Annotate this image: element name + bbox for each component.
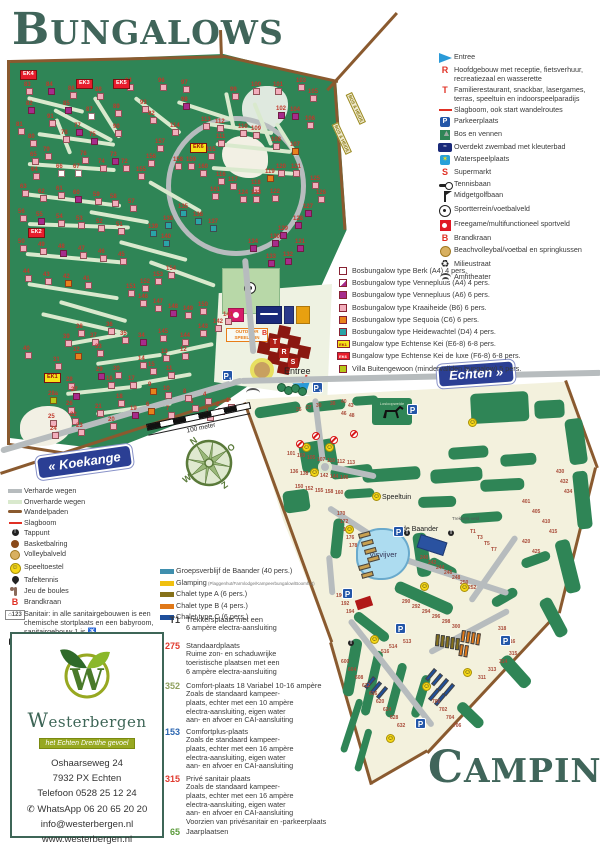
- facility-legend-item: Tennisbaan: [436, 179, 598, 188]
- camping-legend-label: Chalet type A (6 pers.): [176, 589, 247, 598]
- facility-legend-icon-cell: T: [436, 86, 454, 95]
- path-legend-item: Jeu de boules: [6, 586, 162, 596]
- path-legend-item: ☺Speeltoestel: [6, 562, 162, 574]
- brand-name: Westerbergen: [12, 708, 162, 732]
- golf-flag: [446, 191, 452, 195]
- pitch-type-text: Comfort-plaats 18 Variabel 10-16 ampèreZ…: [186, 681, 336, 725]
- pitch-type-number: T1: [158, 615, 180, 625]
- contact-lines: Oshaarseweg 247932 PX EchtenTelefoon 052…: [12, 756, 162, 847]
- road-green-icon: [8, 500, 22, 504]
- bungalow-type-item: Bosbungalow type Sequoia (C6) 6 pers.: [334, 315, 598, 324]
- basket-icon: [11, 540, 19, 548]
- pitch-type-text: Jaarplaatsen: [186, 827, 336, 836]
- tree-icon: [291, 384, 300, 393]
- facility-legend-item: Freegame/multifunctioneel sportveld: [436, 219, 598, 231]
- facility-legend-label: Beachvolleybal/voetbal en springkussen: [454, 245, 582, 254]
- facility-legend-icon-cell: S: [436, 168, 454, 177]
- bungalow-type-item: Bosbungalow type Vennepluus (A4) 4 pers.: [334, 278, 598, 287]
- path-legend-icon-cell: [6, 519, 24, 524]
- bungalow-type-swatch-cell: [334, 304, 352, 312]
- path-legend-item: Slagboom: [6, 518, 162, 527]
- facility-legend-icon-cell: ≈: [436, 143, 454, 152]
- camping-title: Camping: [428, 742, 600, 793]
- contact-line: Oshaarseweg 24: [12, 756, 162, 771]
- path-legend-icon-cell: ⌂123: [6, 610, 24, 620]
- facility-legend-label: Slagboom, ook start wandelroutes: [454, 105, 563, 114]
- facility-legend-icon-cell: P: [436, 117, 454, 127]
- smiley-icon: ☺: [10, 563, 21, 574]
- tree-icon: [284, 386, 293, 395]
- camping-legend-swatch: [160, 592, 174, 597]
- bungalow-type-label: Bosbungalow type Vennepluus (A4) 4 pers.: [352, 278, 490, 287]
- facility-legend-label: Sportterrein/voetbalveld: [454, 204, 530, 213]
- path-legend-item: Onverharde wegen: [6, 497, 162, 506]
- contact-line: Telefoon 0528 25 12 24: [12, 786, 162, 801]
- path-legend-label: Brandkraan: [24, 597, 158, 606]
- bungalow-type-item: Bosbungalow type Berk (A4) 4 pers.: [334, 266, 598, 275]
- bungalow-type-label: Bosbungalow type Berk (A4) 4 pers.: [352, 266, 467, 275]
- path-legend-label: Tafeltennis: [24, 575, 158, 584]
- path-legend-label: Tappunt: [24, 528, 158, 537]
- road-brown-icon: [8, 510, 22, 513]
- bungalows-title: Bungalows: [12, 4, 284, 55]
- facility-legend-label: Parkeerplaats: [454, 116, 498, 125]
- path-legend-icon-cell: ☺: [6, 563, 24, 574]
- bungalow-type-swatch: [339, 279, 347, 287]
- facility-legend-item: Beachvolleybal/voetbal en springkussen: [436, 245, 598, 257]
- camping-legend-swatch-cell: [158, 567, 176, 574]
- path-legend-icon-cell: [6, 487, 24, 493]
- camping-legend-label: Groepsverblijf de Baander (40 pers.): [176, 566, 292, 575]
- facility-legend: EntreeRHoofdgebouw met receptie, fietsve…: [436, 52, 598, 284]
- tennis-icon: [439, 184, 451, 187]
- bungalow-type-swatch: EK6: [337, 352, 350, 360]
- pitch-type-block: 315Privé sanitair plaatsZoals de standaa…: [158, 774, 336, 827]
- path-legend-item: Wandelpaden: [6, 507, 162, 516]
- pitch-type-line: Voorzien van privésanitair en -parkeerpl…: [186, 818, 336, 827]
- bungalow-type-item: Villa Buitengewoon (mindervaliden bungal…: [334, 364, 598, 373]
- pitch-type-title: Jaarplaatsen: [186, 827, 336, 836]
- letter-B-icon: B: [442, 234, 449, 243]
- pitch-type-block: 65Jaarplaatsen: [158, 827, 336, 836]
- bungalow-type-label: Villa Buitengewoon (mindervaliden bungal…: [352, 364, 521, 373]
- watersplash-icon: ✶: [440, 155, 450, 165]
- camping-legend-swatch-cell: [158, 590, 176, 597]
- tree-icon: [298, 387, 307, 396]
- beach-icon: [440, 246, 451, 257]
- path-legend-icon-cell: B: [6, 598, 24, 607]
- path-legend-item: Basketbalring: [6, 539, 162, 548]
- bungalow-type-label: Bosbungalow type Heidewachtel (D4) 4 per…: [352, 327, 496, 336]
- bungalow-type-swatch-cell: EK6: [334, 352, 352, 360]
- entree-arrow-icon: [439, 53, 452, 63]
- camping-legend-swatch-cell: [158, 579, 176, 586]
- soccer-dot: [443, 209, 446, 212]
- parking-icon: P: [440, 117, 450, 127]
- path-legend-icon-cell: [6, 587, 24, 596]
- pitch-type-text: Privé sanitair plaatsZoals de standaard …: [186, 774, 336, 827]
- path-legend-item: Tafeltennis: [6, 575, 162, 584]
- pitch-type-text: Comfortplus-plaatsZoals de standaard kam…: [186, 727, 336, 771]
- contact-line: info@westerbergen.nl: [12, 817, 162, 832]
- facility-legend-item: ▲Bos en vennen: [436, 129, 598, 140]
- camping-legend-swatch: [160, 569, 174, 574]
- pitch-type-block: 153Comfortplus-plaatsZoals de standaard …: [158, 727, 336, 771]
- path-legend-icon-cell: [6, 498, 24, 504]
- path-legend-icon-cell: T: [6, 529, 24, 536]
- map-boundary-line: [327, 12, 398, 91]
- path-legend-label: Slagboom: [24, 518, 158, 527]
- letter-B-icon: B: [12, 598, 19, 607]
- bungalow-type-swatch: [339, 304, 347, 312]
- pitch-type-line: 6 ampère electra-aansluiting: [186, 624, 336, 633]
- jeu-icon: [14, 587, 17, 596]
- facility-legend-icon-cell: [436, 220, 454, 231]
- facility-legend-icon-cell: B: [436, 234, 454, 243]
- bungalow-type-swatch-cell: [334, 291, 352, 299]
- path-legend-icon-cell: [6, 576, 24, 583]
- pitch-type-line: 6 ampère electra-aansluiting: [186, 668, 336, 677]
- path-legend-label: Verharde wegen: [24, 486, 158, 495]
- bungalow-type-item: Bosbungalow type Kraaiheide (B6) 6 pers.: [334, 303, 598, 312]
- path-legend-label: Jeu de boules: [24, 586, 158, 595]
- svg-text:W: W: [69, 663, 105, 698]
- facility-legend-item: PParkeerplaats: [436, 116, 598, 127]
- svg-text:Z: Z: [219, 479, 230, 491]
- tennis-ball: [445, 182, 453, 190]
- koekange-sign: « Koekange: [35, 443, 134, 480]
- path-legend-item: Volleybalveld: [6, 549, 162, 560]
- facility-legend-item: ✶Waterspeelplaats: [436, 154, 598, 165]
- bos-heide-tag: BOS & HEIDE: [345, 92, 366, 125]
- path-legend-item: TTappunt: [6, 528, 162, 537]
- path-legend-item: Verharde wegen: [6, 486, 162, 495]
- road-gray-icon: [8, 489, 22, 493]
- facility-legend-label: Entree: [454, 52, 475, 61]
- facility-legend-item: Entree: [436, 52, 598, 63]
- bungalow-type-item: Bosbungalow type Vennepluus (A6) 6 pers.: [334, 290, 598, 299]
- letter-T-icon: T: [442, 86, 448, 95]
- bungalow-type-swatch: EK1: [337, 340, 350, 348]
- facility-legend-icon-cell: [436, 180, 454, 187]
- facility-legend-label: Brandkraan: [454, 233, 491, 242]
- bungalow-type-label: Bungalow type Echtense Kei de luxe (F6-8…: [352, 351, 521, 360]
- bungalow-type-swatch: [339, 267, 347, 275]
- facility-legend-icon-cell: [436, 53, 454, 63]
- path-legend-icon-cell: [6, 540, 24, 548]
- bungalow-type-swatch: [339, 365, 347, 373]
- facility-legend-label: Bos en vennen: [454, 129, 502, 138]
- facility-legend-label: Familierestaurant, snackbar, lasergames,…: [454, 85, 598, 103]
- tree-icon: ▲: [440, 130, 450, 140]
- camping-legend-item: Glamping (Plaggenhut/Farmlodge/Kampeerbu…: [158, 578, 336, 587]
- bungalow-type-item: Bosbungalow type Heidewachtel (D4) 4 per…: [334, 327, 598, 336]
- red-line-icon: [9, 522, 22, 524]
- bungalow-type-label: Bosbungalow type Vennepluus (A6) 6 pers.: [352, 290, 490, 299]
- camping-legend-swatch: [160, 604, 174, 609]
- tappunt-icon: T: [12, 529, 19, 536]
- facility-legend-item: SSupermarkt: [436, 167, 598, 177]
- amphitheatre-icon: [246, 388, 260, 398]
- bungalow-type-label: Bosbungalow type Sequoia (C6) 6 pers.: [352, 315, 479, 324]
- camping-legend-swatch: [160, 581, 174, 586]
- pitch-type-line: aan- en afvoer en CAI-aansluiting: [186, 716, 336, 725]
- golf-icon: [444, 191, 446, 202]
- facility-legend-item: RHoofdgebouw met receptie, fietsverhuur,…: [436, 65, 598, 83]
- path-legend-icon-cell: [6, 508, 24, 513]
- letter-S-icon: S: [442, 168, 448, 177]
- jeu-ball: [10, 587, 14, 591]
- facility-legend-item: TFamilierestaurant, snackbar, lasergames…: [436, 85, 598, 103]
- facility-legend-icon-cell: [436, 191, 454, 202]
- bungalow-type-swatch-cell: [334, 267, 352, 275]
- facility-legend-icon-cell: [436, 205, 454, 217]
- bungalow-type-label: Bungalow type Echtense Kei (E6-8) 6-8 pe…: [352, 339, 496, 348]
- soccer-icon: [439, 205, 451, 217]
- facility-legend-label: Tennisbaan: [454, 179, 491, 188]
- pitch-type-text: Trekkersplaats met een6 ampère electra-a…: [186, 615, 336, 633]
- facility-legend-label: Overdekt zwembad met kleuterbad: [454, 142, 565, 151]
- contact-line: 7932 PX Echten: [12, 771, 162, 786]
- bungalow-type-swatch-cell: EK1: [334, 340, 352, 348]
- facility-legend-icon-cell: R: [436, 66, 454, 75]
- letter-R-icon: R: [442, 66, 449, 75]
- path-legend-label: Volleybalveld: [24, 549, 158, 558]
- facility-legend-item: BBrandkraan: [436, 233, 598, 243]
- whatsapp-icon: ✆: [27, 804, 38, 815]
- facility-legend-label: Midgetgolfbaan: [454, 190, 503, 199]
- freegame-icon: [440, 220, 451, 231]
- pitch-type-block: 275StandaardplaatsRuime zon- en schaduwr…: [158, 641, 336, 676]
- path-legend-label: Basketbalring: [24, 539, 158, 548]
- bungalow-type-swatch-cell: [334, 328, 352, 336]
- pool-icon: ≈: [438, 143, 452, 152]
- bungalow-type-item: EK6Bungalow type Echtense Kei de luxe (F…: [334, 351, 598, 360]
- contact-box: W Westerbergen het Echten Drenthe gevoel…: [10, 632, 164, 838]
- facility-legend-icon-cell: ✶: [436, 155, 454, 165]
- map-boundary-line: [8, 60, 11, 445]
- camping-legend-swatch-cell: [158, 602, 176, 609]
- bungalow-type-swatch-cell: [334, 279, 352, 287]
- freegame-ball: [442, 223, 447, 228]
- sanitair-icon: ⌂123: [5, 610, 25, 620]
- facility-legend-icon-cell: [436, 106, 454, 111]
- facility-legend-label: Supermarkt: [454, 167, 491, 176]
- facility-legend-label: Waterspeelplaats: [454, 154, 509, 163]
- facility-legend-item: ≈Overdekt zwembad met kleuterbad: [436, 142, 598, 152]
- path-legend-item: BBrandkraan: [6, 597, 162, 607]
- westerbergen-logo: W: [54, 638, 120, 702]
- red-line-icon: [439, 109, 452, 111]
- pitch-type-line: aan- en afvoer en CAI-aansluiting: [186, 762, 336, 771]
- facility-legend-icon-cell: [436, 246, 454, 257]
- tree-icon: [277, 383, 286, 392]
- bungalow-type-item: EK1Bungalow type Echtense Kei (E6-8) 6-8…: [334, 339, 598, 348]
- facility-legend-item: Midgetgolfbaan: [436, 190, 598, 202]
- bungalow-types-legend: Bosbungalow type Berk (A4) 4 pers.Bosbun…: [334, 266, 598, 376]
- contact-line: ✆ WhatsApp 06 20 65 20 20: [12, 802, 162, 817]
- facility-legend-item: Slagboom, ook start wandelroutes: [436, 105, 598, 114]
- bungalow-map: [8, 50, 350, 450]
- bungalow-type-label: Bosbungalow type Kraaiheide (B6) 6 pers.: [352, 303, 487, 312]
- path-legend-label: Speeltoestel: [24, 562, 158, 571]
- camping-legend-label: Chalet type B (4 pers.): [176, 601, 248, 610]
- tafeltennis-icon: [10, 575, 20, 585]
- camping-pitch-number: 706: [453, 724, 461, 729]
- camping-legend: Groepsverblijf de Baander (40 pers.)Glam…: [158, 566, 336, 838]
- contact-line-text: WhatsApp 06 20 65 20 20: [37, 804, 147, 815]
- camping-legend-item: Groepsverblijf de Baander (40 pers.): [158, 566, 336, 575]
- pitch-type-block: T1Trekkersplaats met een6 ampère electra…: [158, 615, 336, 633]
- facility-legend-label: Hoofdgebouw met receptie, fietsverhuur, …: [454, 65, 598, 83]
- brand-tagline: het Echten Drenthe gevoel: [39, 738, 136, 749]
- camping-legend-sublabel: (Plaggenhut/Farmlodge/Kampeerbungalow/Bo…: [207, 581, 315, 586]
- facility-legend-item: Sportterrein/voetbalveld: [436, 204, 598, 217]
- pitch-type-text: StandaardplaatsRuime zon- en schaduwrijk…: [186, 641, 336, 676]
- path-legend-label: Onverharde wegen: [24, 497, 158, 506]
- contact-line: www.westerbergen.nl: [12, 832, 162, 847]
- pitch-type-block: 352Comfort-plaats 18 Variabel 10-16 ampè…: [158, 681, 336, 725]
- tree-glyph: ▲: [442, 128, 451, 138]
- camping-legend-item: Chalet type A (6 pers.): [158, 589, 336, 598]
- volley-icon: [10, 550, 20, 560]
- bungalow-type-swatch: [339, 316, 347, 324]
- camping-legend-items: Groepsverblijf de Baander (40 pers.)Glam…: [158, 566, 336, 621]
- path-legend-label: Wandelpaden: [24, 507, 158, 516]
- path-legend-icon-cell: [6, 550, 24, 560]
- camping-legend-item: Chalet type B (4 pers.): [158, 601, 336, 610]
- facility-legend-icon-cell: ▲: [436, 130, 454, 140]
- facility-legend-label: Freegame/multifunctioneel sportveld: [454, 219, 570, 228]
- bungalow-type-swatch: [339, 291, 347, 299]
- bungalow-type-swatch-cell: [334, 316, 352, 324]
- bungalow-type-swatch: [339, 328, 347, 336]
- camping-legend-label: Glamping (Plaggenhut/Farmlodge/Kampeerbu…: [176, 578, 315, 587]
- bungalow-type-swatch-cell: [334, 365, 352, 373]
